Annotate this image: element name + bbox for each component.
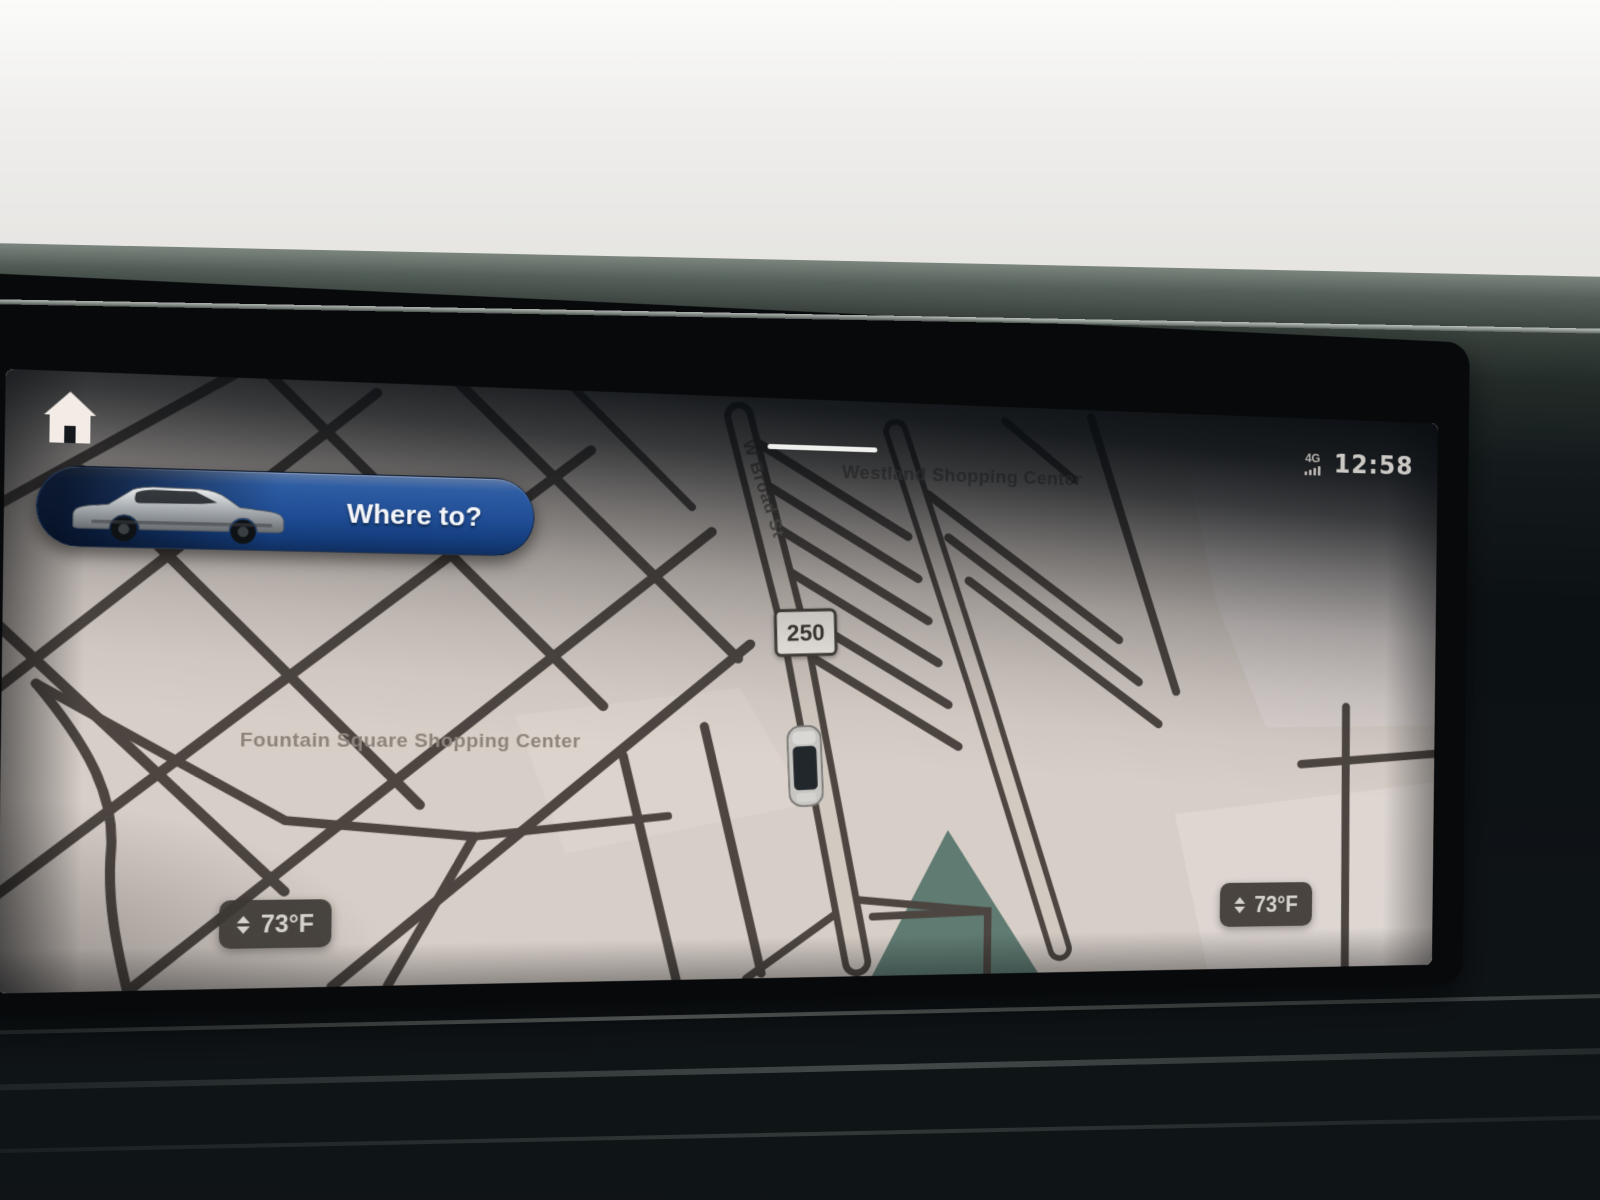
suv-car-image (48, 475, 307, 549)
where-to-label: Where to? (312, 474, 515, 556)
temp-right-value: 73°F (1254, 891, 1298, 917)
temp-left-value: 73°F (261, 909, 315, 938)
network-indicator: 4G (1305, 452, 1321, 476)
temp-updown-icon (237, 915, 250, 933)
infotainment-screen: Westland Shopping Center Fountain Square… (0, 272, 1470, 1018)
vehicle-position-marker (786, 724, 825, 807)
where-to-button[interactable]: Where to? (35, 464, 534, 556)
route-250-shield: 250 (774, 608, 838, 657)
photo-frame: Westland Shopping Center Fountain Square… (0, 0, 1600, 1200)
route-shield-number: 250 (787, 619, 825, 647)
clock: 12:58 (1334, 452, 1414, 480)
climate-temp-right[interactable]: 73°F (1220, 882, 1312, 927)
status-cluster: 4G 12:58 (1305, 451, 1414, 480)
temp-updown-icon (1234, 897, 1245, 913)
home-button[interactable] (39, 387, 101, 449)
signal-bars-icon (1305, 466, 1321, 476)
poi-label-fountain: Fountain Square Shopping Center (201, 729, 616, 753)
screen-glass: Westland Shopping Center Fountain Square… (0, 272, 1470, 1018)
climate-temp-left[interactable]: 73°F (219, 899, 332, 949)
navigation-display[interactable]: Westland Shopping Center Fountain Square… (0, 369, 1438, 994)
network-label: 4G (1305, 452, 1320, 465)
home-icon (40, 387, 100, 447)
